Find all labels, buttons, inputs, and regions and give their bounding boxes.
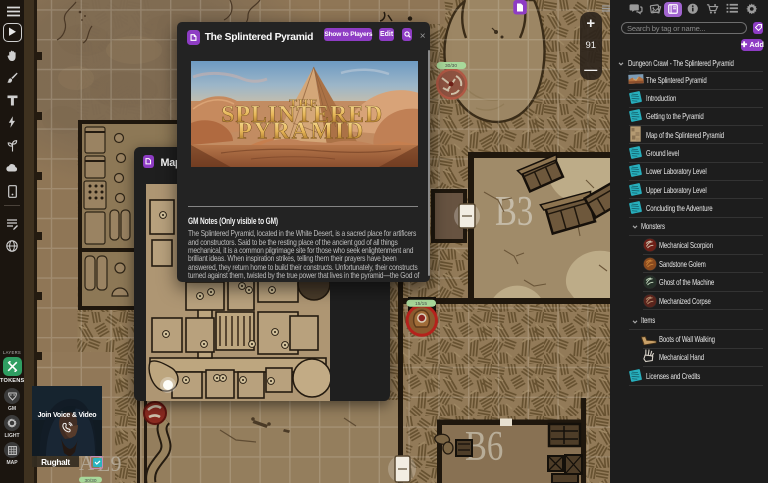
svg-text:B3: B3 (495, 188, 533, 235)
svg-text:30/30: 30/30 (84, 478, 96, 483)
svg-text:30/30: 30/30 (445, 63, 457, 69)
svg-text:15/15: 15/15 (415, 301, 427, 307)
